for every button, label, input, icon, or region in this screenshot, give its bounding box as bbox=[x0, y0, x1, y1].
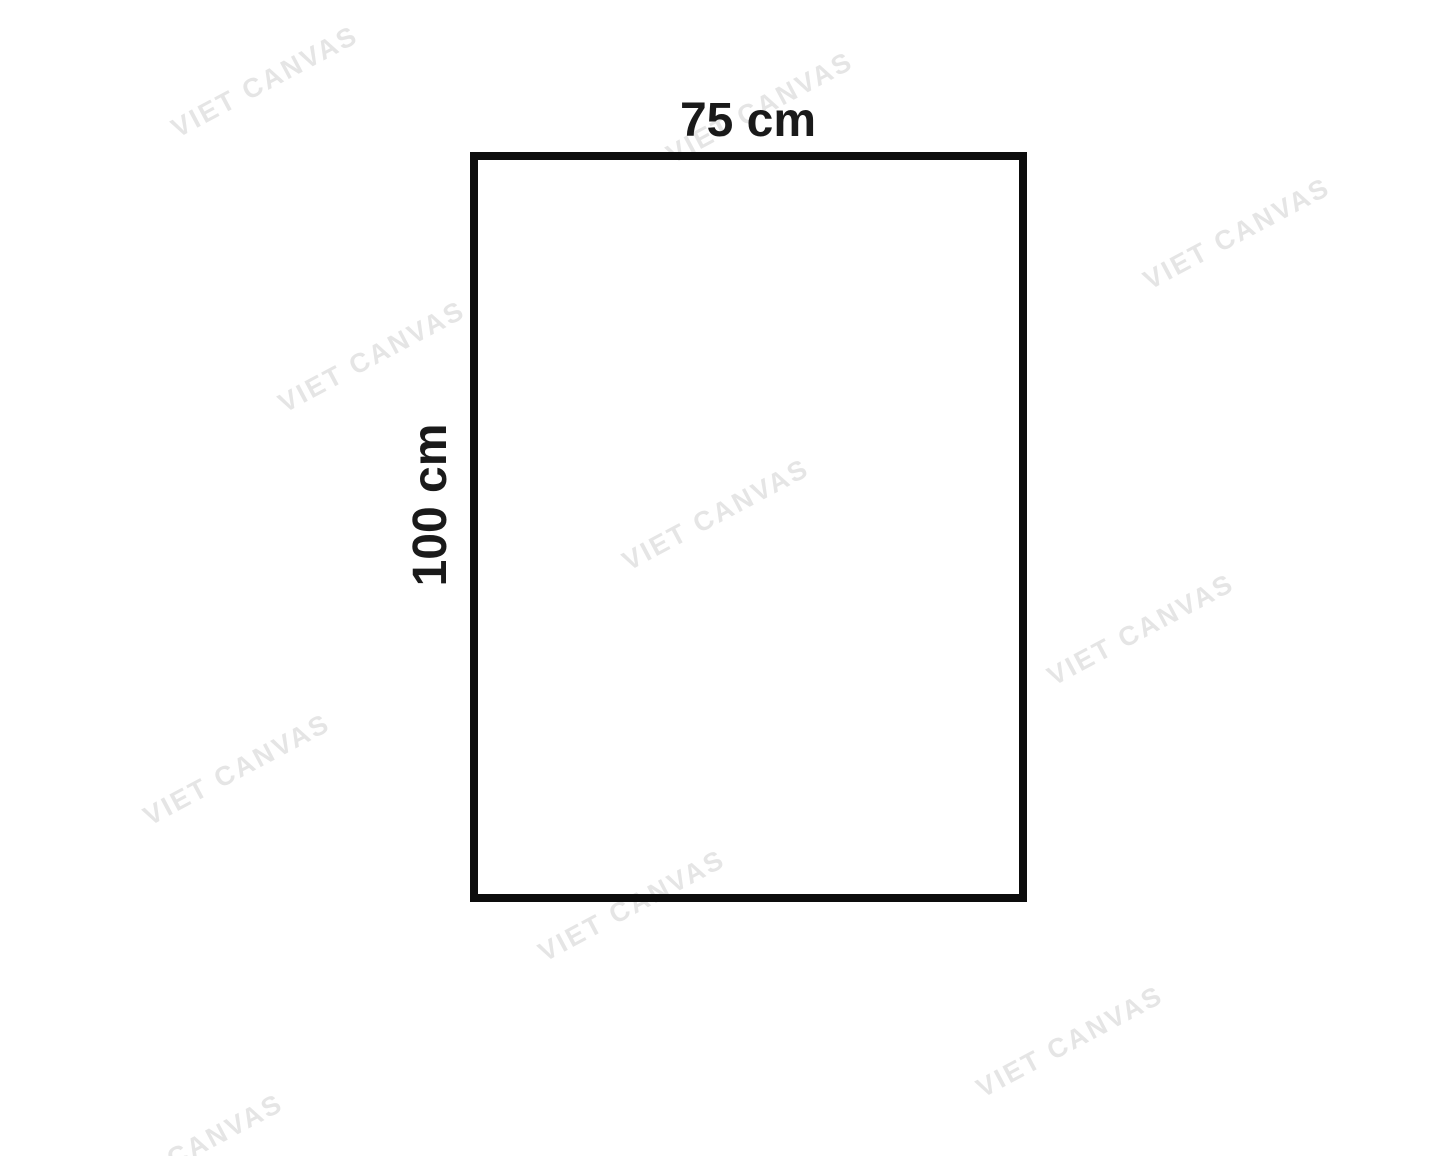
watermark-text: VIET CANVAS bbox=[166, 20, 363, 145]
watermark-text: VIET CANVAS bbox=[138, 708, 335, 833]
width-dimension-label: 75 cm bbox=[680, 97, 816, 145]
height-dimension-label: 100 cm bbox=[407, 424, 455, 587]
watermark-text: VIET CANVAS bbox=[273, 295, 470, 420]
watermark-text: VIET CANVAS bbox=[1138, 172, 1335, 297]
watermark-text: VIET CANVAS bbox=[91, 1088, 288, 1156]
watermark-text: VIET CANVAS bbox=[971, 980, 1168, 1105]
dimension-diagram: VIET CANVASVIET CANVASVIET CANVASVIET CA… bbox=[0, 0, 1445, 1156]
canvas-outline-rectangle bbox=[470, 152, 1027, 902]
watermark-text: VIET CANVAS bbox=[1042, 568, 1239, 693]
